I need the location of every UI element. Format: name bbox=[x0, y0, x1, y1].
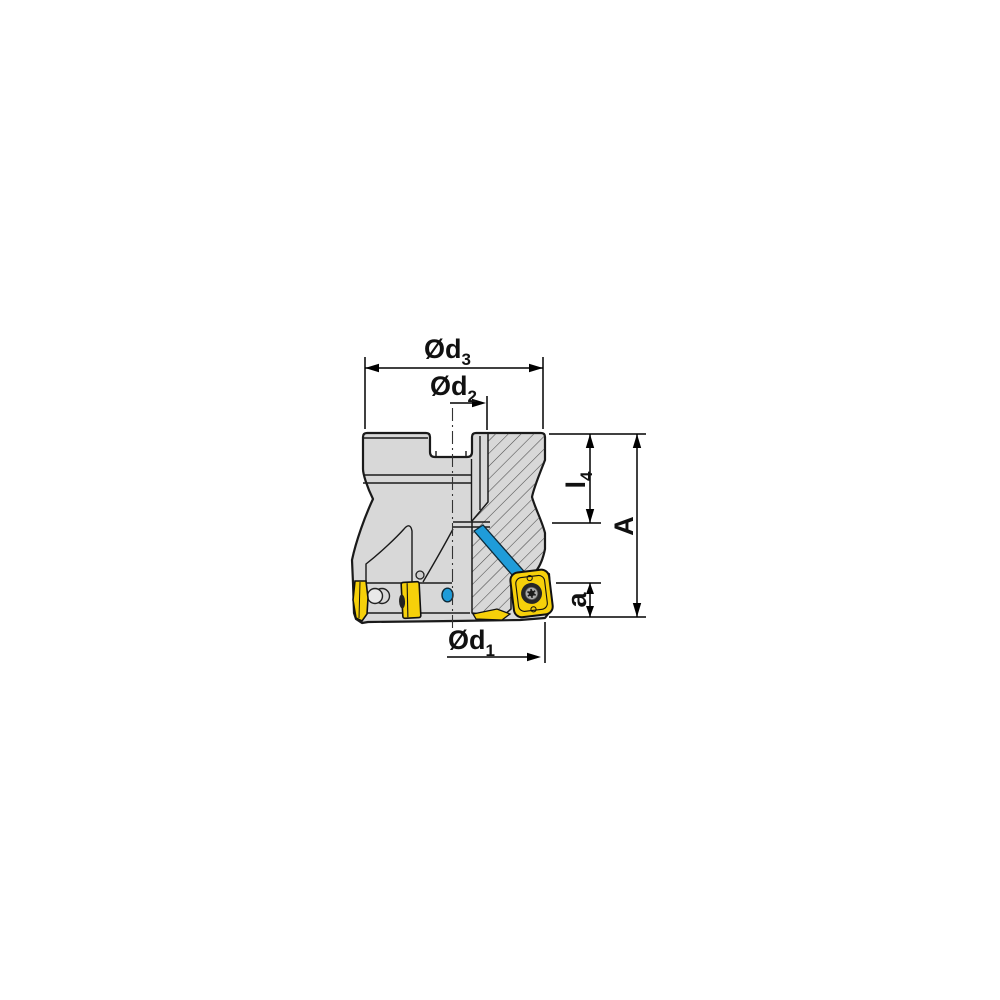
cam-hole-front bbox=[368, 589, 383, 604]
A-arrow-top bbox=[633, 434, 641, 448]
a-arrow-top bbox=[586, 583, 594, 594]
l4-arrow-bottom bbox=[586, 509, 594, 523]
dim-label-d3: Ød3 bbox=[424, 334, 471, 369]
insert-peripheral-left bbox=[353, 581, 368, 621]
d3-arrow-right bbox=[529, 364, 543, 372]
A-arrow-bottom bbox=[633, 603, 641, 617]
technical-drawing-canvas: Ød3 Ød2 Ød1 l4 A a bbox=[0, 0, 1000, 1000]
screw-head-side bbox=[416, 571, 424, 579]
milling-cutter-drawing: Ød3 Ød2 Ød1 l4 A a bbox=[0, 0, 1000, 1000]
d1-arrow bbox=[527, 653, 541, 661]
coolant-exit-hole bbox=[442, 588, 453, 602]
d3-arrow-left bbox=[365, 364, 379, 372]
dim-label-a: a bbox=[562, 592, 592, 608]
insert-left-body bbox=[353, 581, 368, 621]
dim-label-l4: l4 bbox=[561, 471, 596, 489]
dim-label-d2: Ød2 bbox=[430, 371, 477, 406]
dim-l4 bbox=[549, 434, 646, 523]
insert-section-right bbox=[509, 569, 553, 618]
l4-arrow-top bbox=[586, 434, 594, 448]
dim-label-d1: Ød1 bbox=[448, 625, 495, 660]
dim-label-A: A bbox=[609, 516, 639, 536]
